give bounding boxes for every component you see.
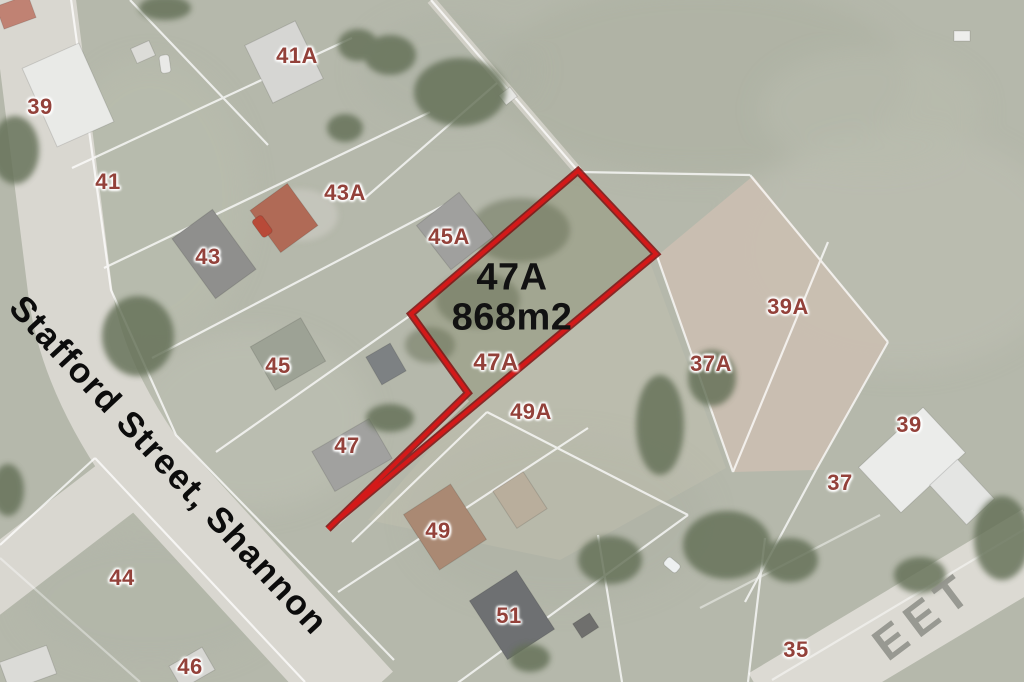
- car: [159, 54, 171, 73]
- aerial-map: 39 41A 41 43A 43 45A 45 47 47A 49A 49 51…: [0, 0, 1024, 682]
- aerial-basemap: [0, 0, 1024, 682]
- shed: [954, 31, 970, 41]
